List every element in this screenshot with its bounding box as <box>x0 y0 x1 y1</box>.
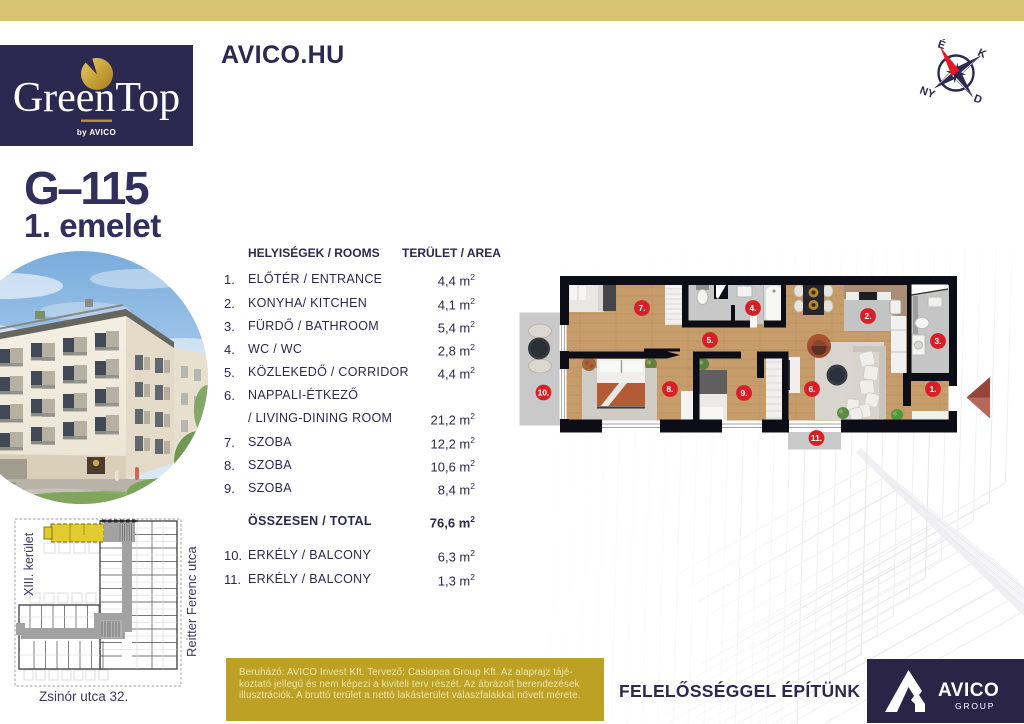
svg-text:10.: 10. <box>538 388 550 398</box>
svg-text:É: É <box>936 37 947 52</box>
svg-text:5.: 5. <box>706 335 713 345</box>
svg-text:2.: 2. <box>864 311 871 321</box>
svg-text:9.: 9. <box>740 388 747 398</box>
svg-text:3.: 3. <box>934 336 941 346</box>
svg-text:11.: 11. <box>811 433 822 443</box>
svg-text:NY: NY <box>918 85 937 102</box>
svg-text:1.: 1. <box>929 384 936 394</box>
svg-text:8.: 8. <box>666 384 673 394</box>
svg-text:4.: 4. <box>749 303 756 313</box>
svg-text:6.: 6. <box>808 384 815 394</box>
svg-text:D: D <box>972 93 984 107</box>
svg-text:7.: 7. <box>638 303 645 313</box>
